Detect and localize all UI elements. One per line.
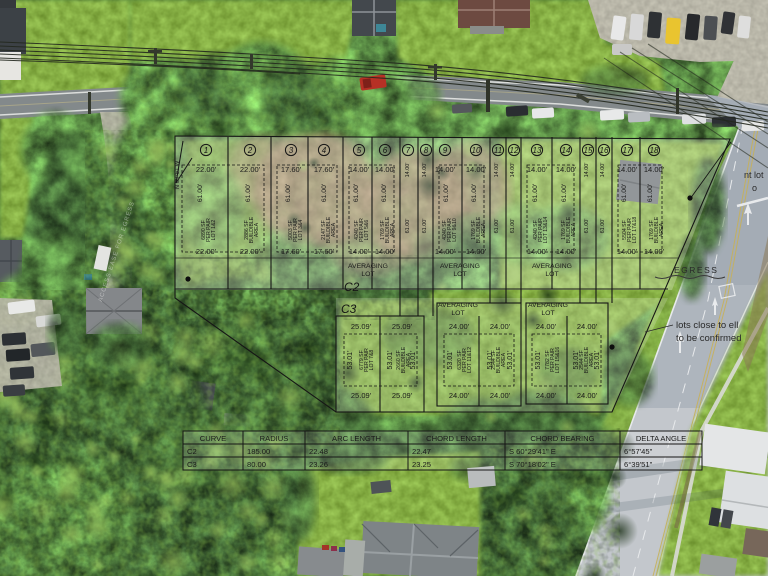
svg-text:6°39'51": 6°39'51" xyxy=(624,460,653,469)
svg-text:61.00': 61.00' xyxy=(422,219,428,234)
svg-text:11: 11 xyxy=(494,146,502,155)
svg-text:6: 6 xyxy=(383,146,388,155)
svg-text:LOT: LOT xyxy=(453,271,466,278)
svg-text:C2: C2 xyxy=(187,447,197,456)
svg-text:C3: C3 xyxy=(187,460,197,469)
svg-text:15: 15 xyxy=(584,146,593,155)
svg-text:14.00': 14.00' xyxy=(617,165,638,174)
svg-text:14.00': 14.00' xyxy=(422,163,428,178)
svg-text:LOT 5&6: LOT 5&6 xyxy=(364,220,370,241)
svg-text:24.00': 24.00' xyxy=(490,391,511,400)
svg-text:6°57'45": 6°57'45" xyxy=(624,447,653,456)
svg-text:LOT 17&18: LOT 17&18 xyxy=(632,217,638,244)
svg-text:18: 18 xyxy=(650,146,659,155)
svg-text:61.00': 61.00' xyxy=(532,184,539,202)
svg-text:3: 3 xyxy=(289,146,294,155)
svg-text:S 70°18'02" E: S 70°18'02" E xyxy=(509,460,556,469)
svg-text:14: 14 xyxy=(562,146,571,155)
svg-text:5: 5 xyxy=(357,146,362,155)
svg-text:RADIUS: RADIUS xyxy=(260,434,289,443)
svg-text:CHORD BEARING: CHORD BEARING xyxy=(530,434,594,443)
svg-text:14.00': 14.00' xyxy=(527,165,548,174)
svg-text:14.00': 14.00' xyxy=(435,247,456,256)
svg-text:14.00': 14.00' xyxy=(600,163,606,178)
svg-text:14.00': 14.00' xyxy=(644,247,665,256)
svg-text:CHORD LENGTH: CHORD LENGTH xyxy=(426,434,487,443)
svg-text:13: 13 xyxy=(533,146,542,155)
svg-text:22.48: 22.48 xyxy=(309,447,328,456)
svg-text:14.00': 14.00' xyxy=(584,163,590,178)
svg-text:LOT 15&16: LOT 15&16 xyxy=(555,347,561,374)
svg-text:14.00': 14.00' xyxy=(349,165,370,174)
svg-text:14.00': 14.00' xyxy=(435,165,456,174)
svg-text:14.00': 14.00' xyxy=(527,247,548,256)
svg-text:22.00': 22.00' xyxy=(240,165,261,174)
svg-text:61.00': 61.00' xyxy=(561,184,568,202)
svg-text:EGRESS: EGRESS xyxy=(674,265,718,275)
svg-text:17.60': 17.60' xyxy=(281,165,302,174)
svg-text:LOT 7&8: LOT 7&8 xyxy=(369,350,375,371)
svg-text:ARC LENGTH: ARC LENGTH xyxy=(332,434,381,443)
svg-text:LOT 13&14: LOT 13&14 xyxy=(543,217,549,244)
svg-text:14.00': 14.00' xyxy=(556,247,577,256)
svg-text:LOT 1&2: LOT 1&2 xyxy=(211,220,217,241)
svg-text:14.00': 14.00' xyxy=(349,247,370,256)
svg-text:53.01': 53.01' xyxy=(535,351,542,370)
svg-text:61.00': 61.00' xyxy=(647,184,654,202)
svg-text:24.00': 24.00' xyxy=(536,391,557,400)
svg-text:lots close to ell: lots close to ell xyxy=(676,320,738,331)
svg-text:AREA: AREA xyxy=(501,352,507,367)
svg-text:AVERAGING: AVERAGING xyxy=(438,302,478,309)
svg-text:61.00': 61.00' xyxy=(443,184,450,202)
svg-text:AREA: AREA xyxy=(571,222,577,237)
svg-text:LOT: LOT xyxy=(361,271,374,278)
svg-text:LOT 9&10: LOT 9&10 xyxy=(452,218,458,242)
svg-text:14.00': 14.00' xyxy=(556,165,577,174)
svg-text:22.00': 22.00' xyxy=(196,165,217,174)
svg-text:16: 16 xyxy=(600,146,609,155)
svg-text:7: 7 xyxy=(406,146,411,155)
svg-text:24.00': 24.00' xyxy=(490,322,511,331)
svg-text:23.26: 23.26 xyxy=(309,460,328,469)
svg-text:61.00': 61.00' xyxy=(405,219,411,234)
svg-text:53.01': 53.01' xyxy=(594,351,601,370)
svg-text:61.00': 61.00' xyxy=(321,184,328,202)
svg-text:9: 9 xyxy=(443,146,448,155)
svg-text:AVERAGING: AVERAGING xyxy=(440,263,480,270)
svg-text:22.47: 22.47 xyxy=(412,447,431,456)
svg-text:53.01': 53.01' xyxy=(447,351,454,370)
svg-text:2: 2 xyxy=(247,146,253,155)
svg-text:AREA: AREA xyxy=(406,352,412,367)
svg-text:AREA: AREA xyxy=(659,222,665,237)
svg-text:C3: C3 xyxy=(341,302,357,316)
svg-text:AREA: AREA xyxy=(390,222,396,237)
svg-text:14.00': 14.00' xyxy=(510,163,516,178)
svg-text:14.00': 14.00' xyxy=(644,165,665,174)
svg-text:24.00': 24.00' xyxy=(536,322,557,331)
svg-text:23.25: 23.25 xyxy=(412,460,431,469)
svg-text:61.00': 61.00' xyxy=(353,184,360,202)
svg-text:53.01': 53.01' xyxy=(507,351,514,370)
svg-text:61.00': 61.00' xyxy=(584,219,590,234)
svg-text:AVERAGING: AVERAGING xyxy=(528,302,568,309)
svg-text:LOT 3&4: LOT 3&4 xyxy=(298,220,304,241)
svg-text:24.00': 24.00' xyxy=(449,322,470,331)
svg-text:17.60': 17.60' xyxy=(281,247,302,256)
svg-text:12: 12 xyxy=(510,146,519,155)
svg-text:17.60': 17.60' xyxy=(314,165,335,174)
svg-text:14.00': 14.00' xyxy=(405,163,411,178)
svg-text:53.01': 53.01' xyxy=(347,351,354,370)
svg-text:25.09': 25.09' xyxy=(392,391,413,400)
svg-text:61.00': 61.00' xyxy=(494,219,500,234)
svg-text:61.00': 61.00' xyxy=(600,219,606,234)
svg-text:17.60': 17.60' xyxy=(314,247,335,256)
svg-text:o: o xyxy=(752,183,757,193)
svg-text:14.00': 14.00' xyxy=(375,165,396,174)
svg-text:C2: C2 xyxy=(344,280,360,294)
svg-text:24.00': 24.00' xyxy=(449,391,470,400)
svg-text:AREA: AREA xyxy=(254,222,260,237)
svg-text:185.00: 185.00 xyxy=(247,447,270,456)
svg-text:LOT 11&12: LOT 11&12 xyxy=(467,347,473,373)
svg-text:24.00': 24.00' xyxy=(577,391,598,400)
svg-text:17: 17 xyxy=(623,146,632,155)
svg-text:24.00': 24.00' xyxy=(577,322,598,331)
svg-text:14.00': 14.00' xyxy=(494,163,500,178)
svg-text:25.09': 25.09' xyxy=(351,322,372,331)
svg-text:61.00': 61.00' xyxy=(621,184,628,202)
svg-text:10: 10 xyxy=(472,146,481,155)
svg-text:4: 4 xyxy=(322,146,327,155)
svg-text:LOT: LOT xyxy=(541,310,554,317)
svg-text:25.09': 25.09' xyxy=(392,322,413,331)
svg-text:22.00': 22.00' xyxy=(240,247,261,256)
svg-text:AREA: AREA xyxy=(481,222,487,237)
svg-text:61.00': 61.00' xyxy=(381,184,388,202)
svg-text:AREA: AREA xyxy=(331,222,337,237)
svg-text:AREA: AREA xyxy=(589,352,595,367)
svg-text:1: 1 xyxy=(204,146,208,155)
svg-text:14.00': 14.00' xyxy=(466,247,487,256)
svg-text:25.09': 25.09' xyxy=(351,391,372,400)
svg-text:LOT: LOT xyxy=(545,271,558,278)
svg-text:61.00': 61.00' xyxy=(285,184,292,202)
svg-text:to be confirmed: to be confirmed xyxy=(676,333,741,344)
svg-text:DELTA ANGLE: DELTA ANGLE xyxy=(636,434,686,443)
svg-text:LOT: LOT xyxy=(451,310,464,317)
svg-text:nt lot: nt lot xyxy=(744,170,764,180)
svg-text:61.00': 61.00' xyxy=(245,184,252,202)
svg-text:S 60°29'41" E: S 60°29'41" E xyxy=(509,447,556,456)
svg-text:AVERAGING: AVERAGING xyxy=(348,263,388,270)
svg-text:N 09°51'W: N 09°51'W xyxy=(175,160,181,189)
svg-text:61.00': 61.00' xyxy=(471,184,478,202)
svg-text:61.00': 61.00' xyxy=(197,184,204,202)
svg-text:80.00: 80.00 xyxy=(247,460,266,469)
svg-text:AVERAGING: AVERAGING xyxy=(532,263,572,270)
svg-text:8: 8 xyxy=(424,146,429,155)
svg-text:22.00': 22.00' xyxy=(196,247,217,256)
svg-text:CURVE: CURVE xyxy=(200,434,226,443)
svg-text:14.00': 14.00' xyxy=(466,165,487,174)
svg-text:61.00': 61.00' xyxy=(510,219,516,234)
svg-text:53.01': 53.01' xyxy=(387,351,394,370)
svg-text:14.00': 14.00' xyxy=(617,247,638,256)
svg-text:14.00': 14.00' xyxy=(375,247,396,256)
